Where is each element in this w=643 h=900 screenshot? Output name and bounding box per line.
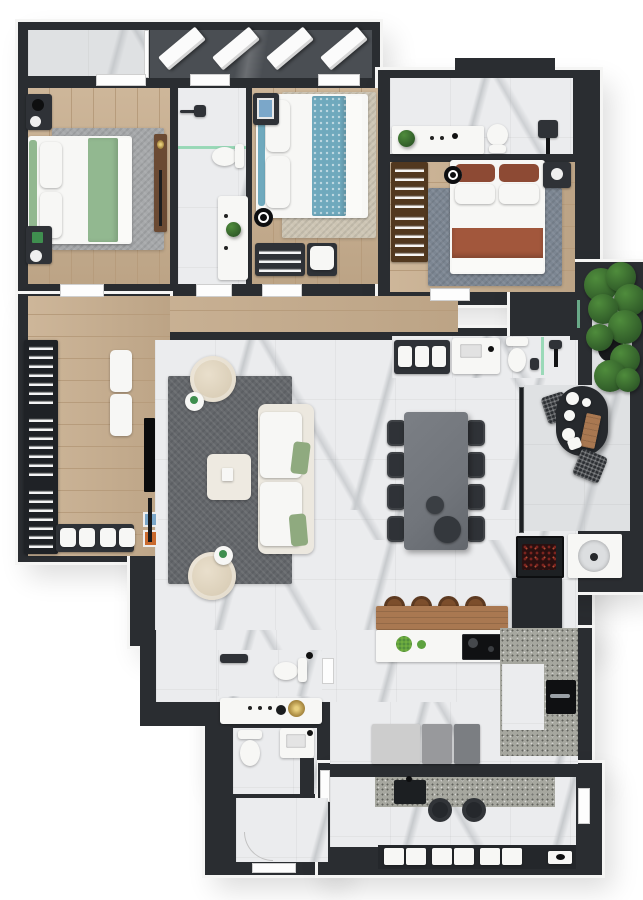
- door-entry: [252, 863, 296, 873]
- dining-platter-large: [434, 516, 461, 543]
- bedroom2-basket: [310, 246, 334, 270]
- master-bath-shower-stem: [546, 138, 550, 154]
- guest-bath-soap: [488, 346, 494, 352]
- hallway-closet-section-1: [29, 346, 53, 404]
- laundry-basket-6: [502, 848, 522, 865]
- bathroom3-soap: [306, 652, 313, 659]
- bathroom1-shower-head: [194, 105, 206, 117]
- guest-bath-towel-1: [398, 346, 412, 367]
- door-master-bedroom: [430, 288, 470, 301]
- balcony-sink-drain: [590, 553, 598, 561]
- master-bath-faucet-2: [440, 136, 444, 140]
- bedroom2-pillow-2: [266, 156, 290, 208]
- kitchen-appliance-mid: [422, 724, 452, 764]
- bathroom1-plant: [226, 222, 241, 237]
- laundry-faucet: [406, 776, 412, 782]
- kitchen-fruit-bowl: [396, 636, 412, 652]
- door-ac-area-2: [318, 74, 360, 86]
- bathroom4-toilet-bowl: [240, 740, 260, 766]
- bathroom4-soap: [307, 730, 313, 736]
- living-ottoman-tray: [222, 468, 233, 481]
- balcony-grill-embers: [522, 544, 556, 570]
- living-sidetable-bottom-cup: [219, 550, 227, 558]
- door-bedroom1: [60, 284, 104, 297]
- guest-bath-towel-2: [415, 346, 429, 367]
- bathroom1-vanity: [218, 196, 248, 280]
- bedroom1-bed-fold: [118, 138, 131, 242]
- master-lamp-ball: [551, 168, 563, 180]
- balcony-plant-leaf-5: [608, 310, 642, 344]
- laundry-sink: [394, 780, 426, 804]
- balcony-plate-1: [566, 392, 579, 405]
- hallway-pouf-3: [100, 528, 116, 547]
- bathroom3-vanity: [220, 698, 322, 724]
- bathroom1-faucet-2: [224, 246, 228, 250]
- bedroom2-art-frame: [257, 98, 274, 119]
- laundry-tray-item: [556, 854, 565, 860]
- tv-soundbar: [148, 498, 152, 542]
- laundry-stool-1: [428, 798, 452, 822]
- bathroom1-faucet-1: [224, 214, 228, 218]
- master-wardrobe-hangers-top: [395, 166, 424, 208]
- laundry-stool-2: [462, 798, 486, 822]
- kitchen-cooktop-knob: [488, 646, 494, 652]
- door-bedroom2: [262, 284, 302, 297]
- hallway-pouf-4: [119, 528, 135, 547]
- hallway-bench-cushion-1: [110, 350, 132, 392]
- master-bath-toilet-bowl: [487, 124, 508, 146]
- master-wardrobe-hangers-bottom: [395, 214, 424, 256]
- kitchen-bar-top: [376, 606, 508, 630]
- master-bath-shower-head: [538, 120, 558, 138]
- guest-bath-toilet-tank: [506, 337, 528, 346]
- hallway-closet-section-3: [29, 490, 53, 548]
- kitchen-appliance-light: [372, 724, 420, 764]
- master-blanket: [452, 228, 543, 258]
- guest-bath-shower-stem: [554, 349, 558, 367]
- kitchen-appliance-dark: [454, 724, 480, 764]
- master-bath-toilet-tank: [489, 145, 506, 153]
- master-rust-pillow-2: [499, 164, 539, 182]
- laundry-basket-4: [454, 848, 474, 865]
- bathroom3-gold-flower: [288, 700, 305, 717]
- master-bath-faucet-1: [430, 136, 434, 140]
- bathroom3-toilet-bowl: [274, 662, 298, 680]
- bedroom1-pillow-1: [40, 142, 62, 188]
- balcony-plate-2: [582, 398, 591, 407]
- living-sidetable-top-cup: [190, 396, 198, 404]
- kitchen-cooktop: [462, 634, 504, 660]
- laundry-basket-2: [406, 848, 426, 865]
- guest-bath-toilet-bowl: [508, 348, 526, 372]
- hallway-pouf-1: [60, 528, 76, 547]
- hallway-pouf-2: [79, 528, 95, 547]
- bedroom2-speaker: [254, 208, 273, 227]
- tech-balcony-floor: [28, 30, 144, 76]
- guest-bath-shower-head: [549, 340, 562, 349]
- door-ac-area-1: [190, 74, 230, 86]
- master-pillow-2: [499, 184, 539, 204]
- bedroom1-bed-green-edge: [29, 140, 37, 240]
- kitchen-counter-inset: [502, 664, 544, 730]
- bedroom2-blanket: [312, 96, 346, 216]
- bedroom1-lamp-ball-bottom: [30, 250, 42, 262]
- master-pillow-1: [455, 184, 495, 204]
- wall-top-notch: [455, 58, 555, 74]
- floor-plan: [0, 0, 643, 900]
- wall-bottom-right-notch: [575, 858, 600, 875]
- dining-chair-right-3: [466, 484, 485, 510]
- bathroom3-shelf: [220, 654, 248, 663]
- dining-platter-small: [426, 496, 444, 514]
- guest-bath-towel-3: [432, 346, 446, 367]
- door-tech-balcony: [96, 74, 146, 86]
- master-balcony-door-glass: [577, 300, 580, 328]
- kitchen-fruit-small: [417, 640, 426, 649]
- dining-chair-right-4: [466, 516, 485, 542]
- dining-chair-right-2: [466, 452, 485, 478]
- bedroom1-console-decor: [157, 140, 164, 149]
- guest-bath-glass-partition: [541, 337, 544, 375]
- bedroom1-blanket: [88, 138, 118, 242]
- balcony-plant-leaf-6: [586, 324, 613, 351]
- bedroom1-lamp-ball-top: [30, 116, 41, 127]
- kitchen-cooktop-pan: [468, 638, 478, 648]
- laundry-basket-3: [432, 848, 452, 865]
- dining-chair-right-1: [466, 420, 485, 446]
- door-bathroom1: [196, 284, 232, 297]
- wall-bottom-left-connector: [140, 702, 224, 726]
- bathroom4-toilet-tank: [238, 730, 262, 739]
- bedroom1-green-book: [32, 232, 43, 243]
- bedroom2-clothes-hangers: [259, 247, 301, 272]
- master-speaker: [444, 166, 462, 184]
- bathroom1-toilet-tank: [235, 144, 244, 168]
- laundry-basket-5: [480, 848, 500, 865]
- hallway-bench-cushion-2: [110, 394, 132, 436]
- balcony-plate-3: [564, 410, 575, 421]
- tv-screen: [144, 418, 155, 492]
- kitchen-tall-cabinet: [512, 578, 562, 630]
- bathroom3-faucet-2: [258, 706, 262, 710]
- bathroom3-faucet-3: [268, 706, 272, 710]
- bedroom1-lamp-black: [32, 99, 44, 111]
- laundry-basket-1: [384, 848, 404, 865]
- bathroom1-toilet-bowl: [212, 147, 237, 166]
- bedroom1-console-shelf: [159, 170, 162, 226]
- door-bath-lower: [322, 658, 334, 684]
- master-bath-soap: [452, 133, 458, 139]
- entry-floor: [236, 798, 328, 862]
- kitchen-oven-handle: [550, 694, 570, 698]
- living-sofa-green-pillow-2: [289, 513, 309, 546]
- bedroom2-bed-fold: [346, 96, 362, 216]
- guest-bath-bin: [530, 358, 539, 370]
- bathroom4-sink: [286, 734, 306, 748]
- bathroom4-shower-wall-stub: [300, 758, 314, 794]
- bathroom3-toilet-tank: [298, 658, 307, 682]
- balcony-plant-leaf-9: [616, 368, 640, 392]
- hallway-closet-section-2: [29, 418, 53, 476]
- master-bed-fold: [452, 258, 543, 272]
- dining-balcony-glass-wall: [519, 387, 524, 533]
- bathroom3-faucet-1: [248, 706, 252, 710]
- door-laundry-window: [578, 788, 590, 824]
- guest-bath-sink: [460, 344, 482, 358]
- tech-balcony-jamb: [144, 30, 149, 78]
- master-bath-plant: [398, 130, 415, 147]
- bathroom3-sink-bowl: [276, 705, 286, 715]
